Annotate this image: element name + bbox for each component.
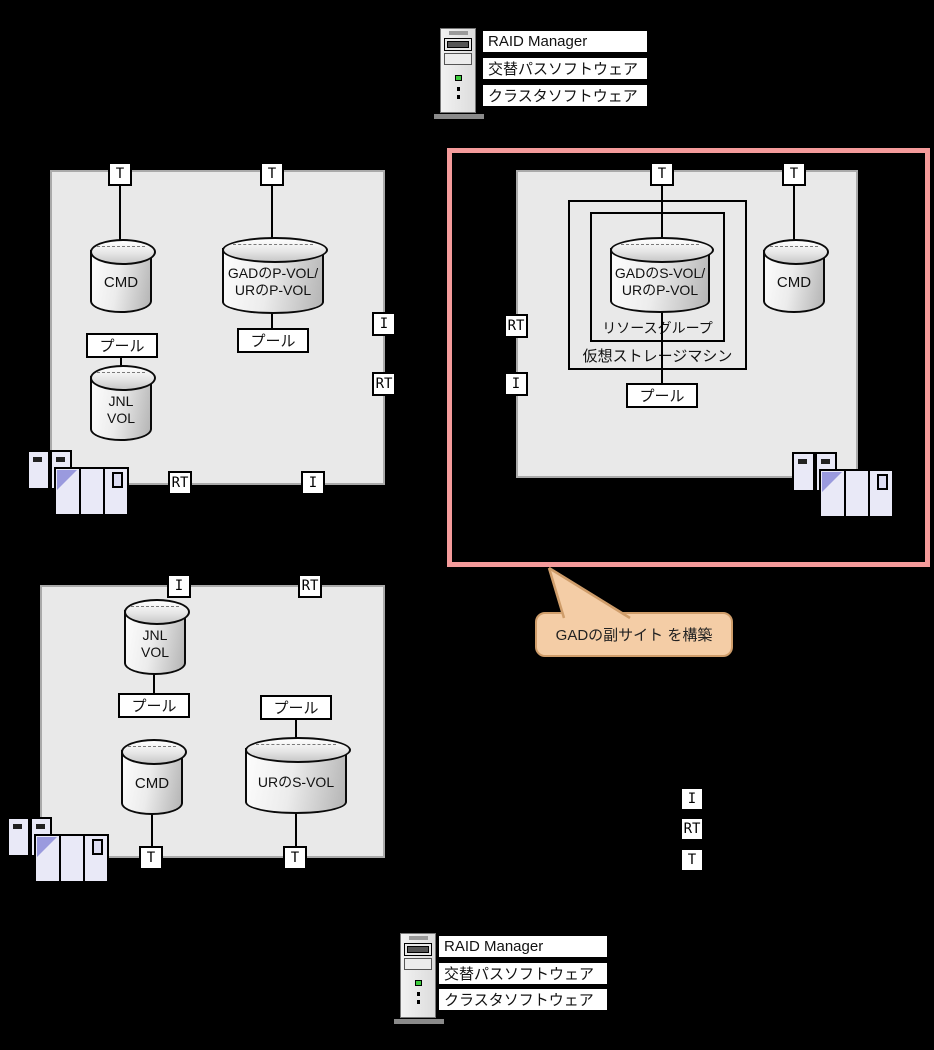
server-drive-bay-icon xyxy=(444,38,472,51)
software-label-alt-path: 交替パスソフトウェア xyxy=(438,962,608,985)
legend-port-target: T xyxy=(680,848,704,872)
jnl-volume-cylinder: JNL VOL xyxy=(90,376,152,441)
pool-label: プール xyxy=(131,695,176,716)
software-label-cluster: クラスタソフトウェア xyxy=(482,84,648,107)
volume-label: CMD xyxy=(104,274,138,291)
port-rcu-target: RT xyxy=(298,574,322,598)
volume-label: CMD xyxy=(135,775,169,792)
callout-tail xyxy=(535,560,665,624)
cmd-volume-cylinder: CMD xyxy=(121,750,183,815)
volume-label: GADのP-VOL/ xyxy=(228,265,318,282)
ur-svol-cylinder: URのS-VOL xyxy=(245,748,347,814)
pool-label: プール xyxy=(250,330,295,351)
port-initiator: I xyxy=(167,574,191,598)
port-label: T xyxy=(291,850,299,866)
server-dot-icon xyxy=(457,95,460,99)
port-target: T xyxy=(139,846,163,870)
pool-box: プール xyxy=(118,693,190,718)
connector-line xyxy=(295,812,297,848)
software-label-alt-path: 交替パスソフトウェア xyxy=(482,57,648,80)
server-base xyxy=(394,1019,444,1024)
connector-line xyxy=(661,186,663,240)
server-base xyxy=(434,114,484,119)
host-server-bottom xyxy=(400,933,436,1018)
server-led-icon xyxy=(455,75,462,81)
port-label: T xyxy=(116,166,124,182)
cmd-volume-cylinder: CMD xyxy=(763,250,825,313)
server-dot-icon xyxy=(417,1000,420,1004)
connector-line xyxy=(271,186,273,240)
jnl-volume-cylinder: JNL VOL xyxy=(124,610,186,675)
port-target: T xyxy=(782,162,806,186)
volume-label: CMD xyxy=(777,274,811,291)
connector-line xyxy=(151,813,153,848)
software-label-raid-manager: RAID Manager xyxy=(482,30,648,53)
volume-label: URのS-VOL xyxy=(258,774,334,791)
port-target: T xyxy=(260,162,284,186)
pool-box: プール xyxy=(86,333,158,358)
port-label: I xyxy=(512,376,520,392)
server-dot-icon xyxy=(417,992,420,996)
legend-port-initiator: I xyxy=(680,787,704,811)
connector-line xyxy=(119,186,121,244)
server-tower-icon xyxy=(440,28,476,113)
storage-array-icon xyxy=(5,815,109,885)
server-dot-icon xyxy=(457,87,460,91)
port-rcu-target: RT xyxy=(372,372,396,396)
server-tower-icon xyxy=(400,933,436,1018)
server-bay-icon xyxy=(444,53,472,65)
port-label: I xyxy=(175,578,183,594)
volume-label: VOL xyxy=(141,644,169,661)
software-label-raid-manager: RAID Manager xyxy=(438,935,608,958)
legend-port-rcu-target: RT xyxy=(680,817,704,841)
port-label: T xyxy=(658,166,666,182)
port-label: RT xyxy=(172,475,189,491)
connector-line xyxy=(793,186,795,242)
volume-label: JNL xyxy=(109,393,134,410)
port-initiator: I xyxy=(504,372,528,396)
pool-box: プール xyxy=(237,328,309,353)
pool-box: プール xyxy=(626,383,698,408)
port-label: T xyxy=(790,166,798,182)
port-initiator: I xyxy=(372,312,396,336)
software-label-cluster: クラスタソフトウェア xyxy=(438,988,608,1011)
server-drive-bay-icon xyxy=(404,943,432,956)
server-vent-icon xyxy=(449,31,468,35)
port-target: T xyxy=(108,162,132,186)
port-label: RT xyxy=(376,376,393,392)
pool-label: プール xyxy=(639,385,684,406)
legend-label: T xyxy=(688,852,696,868)
port-target: T xyxy=(283,846,307,870)
resource-group-label: リソースグループ xyxy=(592,318,723,338)
volume-label: URのP-VOL xyxy=(235,282,311,299)
vsm-label: 仮想ストレージマシン xyxy=(570,345,745,366)
volume-label: URのP-VOL xyxy=(622,282,698,299)
port-rcu-target: RT xyxy=(168,471,192,495)
pool-label: プール xyxy=(273,697,318,718)
host-server-top xyxy=(440,28,476,113)
pool-label: プール xyxy=(99,335,144,356)
server-led-icon xyxy=(415,980,422,986)
pool-box: プール xyxy=(260,695,332,720)
volume-label: GADのS-VOL/ xyxy=(615,265,705,282)
legend-label: RT xyxy=(684,821,701,837)
port-label: I xyxy=(380,316,388,332)
port-label: T xyxy=(147,850,155,866)
port-label: RT xyxy=(508,318,525,334)
callout-text: GADの副サイト を構築 xyxy=(556,624,713,645)
storage-array-icon xyxy=(790,450,894,520)
server-bay-icon xyxy=(404,958,432,970)
port-label: RT xyxy=(302,578,319,594)
port-rcu-target: RT xyxy=(504,314,528,338)
storage-array-icon xyxy=(25,448,129,518)
port-label: I xyxy=(309,475,317,491)
gad-svol-ur-pvol-cylinder: GADのS-VOL/ URのP-VOL xyxy=(610,248,710,313)
connector-line xyxy=(661,311,663,385)
gad-pvol-ur-pvol-cylinder: GADのP-VOL/ URのP-VOL xyxy=(222,248,324,314)
server-vent-icon xyxy=(409,936,428,940)
legend-label: I xyxy=(688,791,696,807)
connector-line xyxy=(153,673,155,695)
volume-label: JNL xyxy=(143,627,168,644)
port-target: T xyxy=(650,162,674,186)
cmd-volume-cylinder: CMD xyxy=(90,250,152,313)
port-label: T xyxy=(268,166,276,182)
port-initiator: I xyxy=(301,471,325,495)
diagram-canvas: RAID Manager 交替パスソフトウェア クラスタソフトウェア T T I… xyxy=(0,0,934,1050)
volume-label: VOL xyxy=(107,410,135,427)
